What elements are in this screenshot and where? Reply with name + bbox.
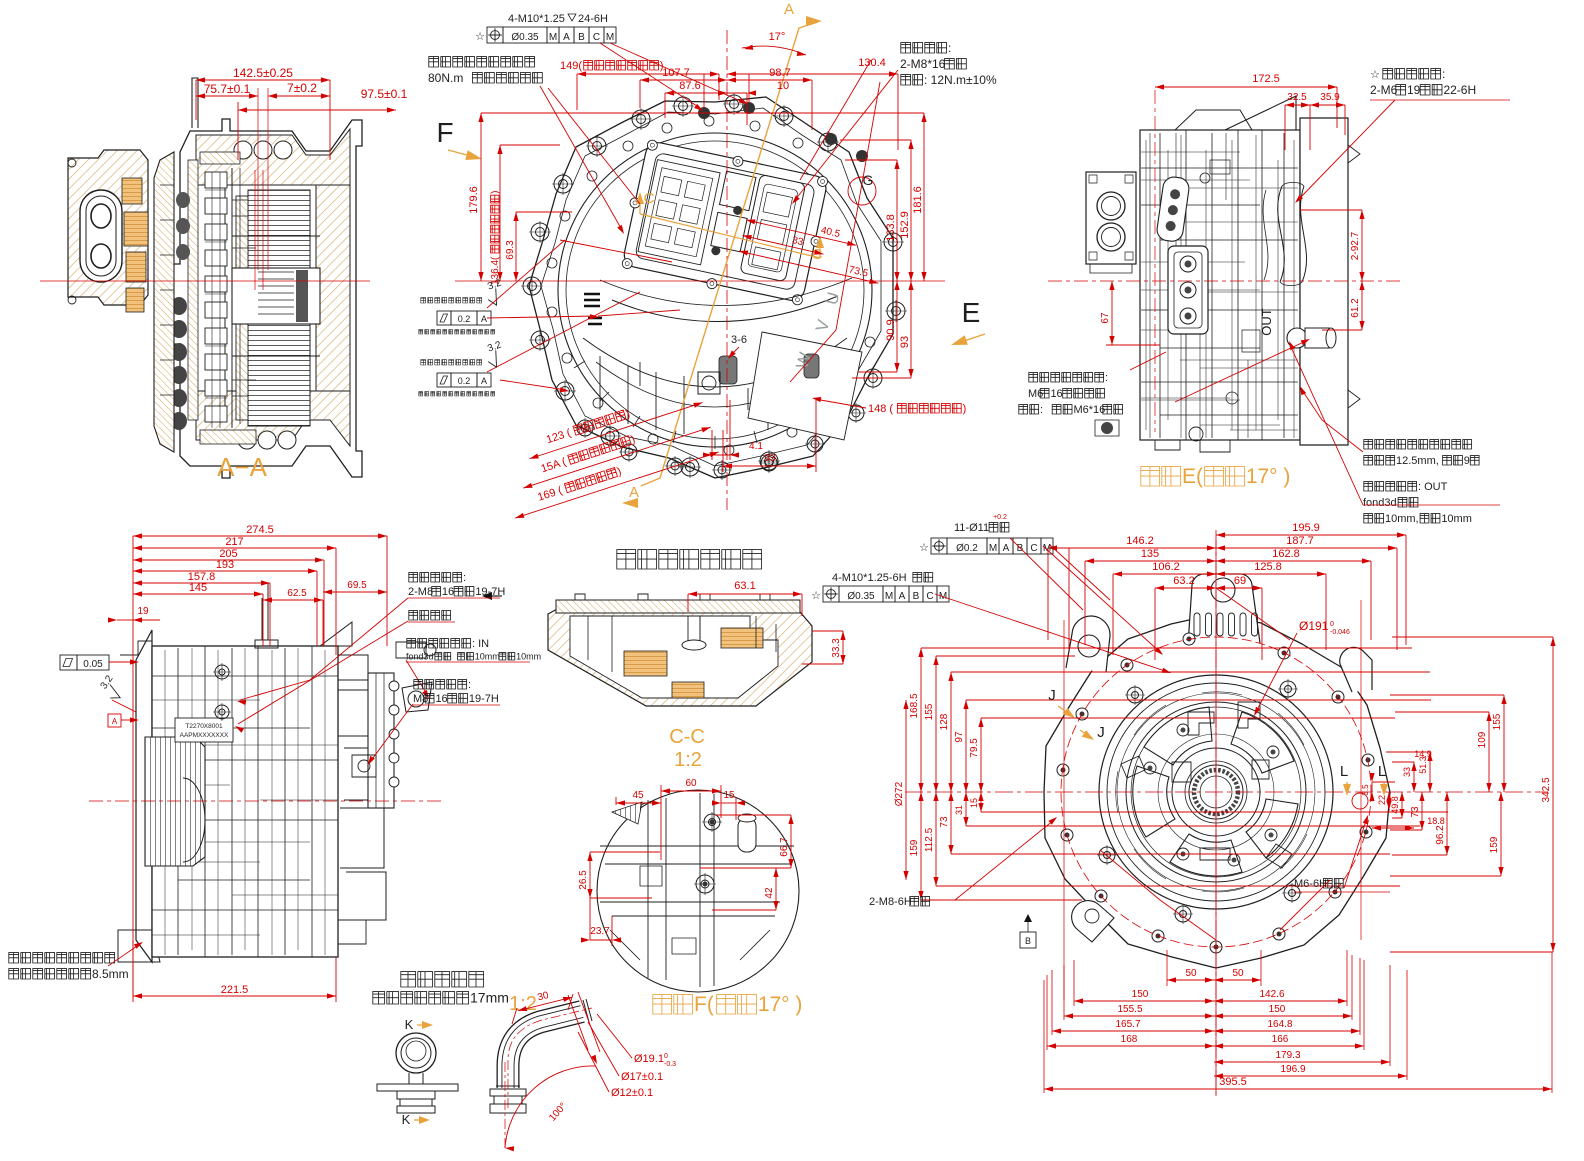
svg-text:2-M8*16: 2-M8*16: [900, 57, 946, 71]
svg-text:42: 42: [764, 887, 775, 899]
svg-text:97: 97: [954, 731, 965, 743]
svg-text:24-6H: 24-6H: [578, 13, 608, 25]
svg-text:M6*16: M6*16: [1073, 404, 1105, 416]
svg-text:96.2: 96.2: [1435, 825, 1446, 845]
svg-text:146.2: 146.2: [1126, 535, 1154, 547]
svg-text:Ø191: Ø191: [1299, 619, 1329, 633]
svg-text:87.6: 87.6: [679, 80, 700, 92]
svg-text:16: 16: [435, 693, 447, 705]
svg-text:): ): [490, 190, 501, 193]
svg-text:A−A: A−A: [217, 452, 268, 482]
svg-text:93: 93: [899, 336, 911, 348]
svg-text:19-7H: 19-7H: [469, 693, 499, 705]
svg-text:17° ): 17° ): [758, 993, 803, 1016]
svg-text:16: 16: [442, 586, 454, 598]
svg-text:0.05: 0.05: [83, 659, 103, 670]
svg-text:125.8: 125.8: [1254, 561, 1282, 573]
svg-text:8.5mm: 8.5mm: [92, 967, 129, 981]
svg-text:150: 150: [1269, 1004, 1286, 1015]
svg-text:195.9: 195.9: [1292, 522, 1320, 534]
svg-text:152.9: 152.9: [899, 211, 911, 239]
svg-text:C: C: [812, 246, 823, 263]
svg-text:10mm,: 10mm,: [1385, 513, 1419, 525]
svg-text:7±0.2: 7±0.2: [287, 81, 317, 95]
svg-text:164.8: 164.8: [1267, 1019, 1292, 1030]
svg-text:31: 31: [954, 805, 964, 815]
svg-text:C-C: C-C: [669, 726, 705, 748]
svg-text:10: 10: [777, 80, 789, 92]
svg-text:Ø0.35: Ø0.35: [847, 591, 875, 602]
svg-text:149(: 149(: [560, 60, 582, 72]
svg-text:17° ): 17° ): [1246, 465, 1291, 488]
svg-text:-0.3: -0.3: [664, 1061, 676, 1068]
svg-text:66.7: 66.7: [779, 837, 790, 857]
svg-text:166: 166: [1272, 1034, 1289, 1045]
svg-text:: OUT: : OUT: [1418, 481, 1448, 493]
svg-text:49.8: 49.8: [1390, 796, 1400, 814]
svg-text:196.9: 196.9: [1280, 1064, 1305, 1075]
svg-text::: :: [1105, 372, 1108, 384]
svg-text:☆: ☆: [811, 590, 821, 602]
svg-text:C: C: [644, 190, 655, 207]
svg-text:181.6: 181.6: [912, 186, 924, 214]
svg-text:80N.m: 80N.m: [428, 71, 463, 85]
svg-text:45: 45: [632, 790, 644, 801]
svg-text:: 12N.m±10%: : 12N.m±10%: [924, 73, 997, 87]
svg-text:50: 50: [1232, 968, 1244, 979]
svg-text:60: 60: [685, 778, 697, 789]
svg-text:35.9: 35.9: [1320, 92, 1340, 103]
svg-text:172.5: 172.5: [1252, 73, 1280, 85]
svg-text:73: 73: [1410, 806, 1421, 818]
svg-text:C: C: [926, 591, 933, 602]
svg-text:1:2: 1:2: [509, 993, 537, 1015]
svg-text:69.3: 69.3: [505, 240, 516, 260]
svg-text:B: B: [578, 32, 585, 43]
svg-text:69: 69: [1234, 575, 1246, 587]
svg-text:12.5mm,: 12.5mm,: [1396, 455, 1439, 467]
svg-text:67: 67: [1100, 312, 1111, 324]
svg-text:A: A: [112, 717, 118, 726]
svg-text:C: C: [593, 32, 600, 43]
svg-text:155.5: 155.5: [1117, 1004, 1142, 1015]
svg-text:T2270X8001: T2270X8001: [185, 723, 223, 730]
svg-text:179.3: 179.3: [1275, 1050, 1300, 1061]
svg-text:155: 155: [1492, 713, 1503, 730]
svg-text:+0.2: +0.2: [993, 514, 1007, 521]
svg-text:61.2: 61.2: [1350, 298, 1361, 318]
svg-text:162.8: 162.8: [1272, 548, 1300, 560]
svg-text:10mm: 10mm: [1441, 513, 1472, 525]
svg-text:Ø0.35: Ø0.35: [511, 32, 539, 43]
svg-text:128: 128: [939, 713, 950, 730]
svg-text:AAPMXXXXXXX: AAPMXXXXXXX: [180, 732, 229, 739]
svg-text:50: 50: [1185, 968, 1197, 979]
svg-text:☆: ☆: [919, 542, 929, 554]
svg-text:274.5: 274.5: [246, 524, 274, 536]
svg-text:193: 193: [216, 559, 234, 571]
svg-text:A: A: [481, 314, 487, 324]
svg-text:K: K: [402, 1112, 411, 1127]
svg-text:15: 15: [723, 790, 735, 801]
svg-text:17°: 17°: [769, 31, 786, 43]
svg-text:217: 217: [225, 536, 243, 548]
svg-text:M: M: [885, 591, 893, 602]
svg-text:A: A: [1003, 543, 1010, 554]
svg-text:33: 33: [1402, 767, 1412, 777]
svg-text:fond3d: fond3d: [406, 651, 434, 661]
svg-text:2-92.7: 2-92.7: [1350, 231, 1361, 260]
svg-text:32.5: 32.5: [1287, 92, 1307, 103]
svg-text:130.4: 130.4: [858, 57, 886, 69]
svg-text:☆: ☆: [475, 31, 485, 43]
svg-text:-0.046: -0.046: [1330, 629, 1350, 636]
svg-text:133.8: 133.8: [885, 214, 897, 242]
svg-text::: :: [468, 679, 471, 691]
svg-text:B: B: [1025, 936, 1031, 946]
svg-text:22: 22: [1377, 795, 1387, 805]
svg-text:☆: ☆: [1370, 69, 1380, 81]
svg-text:Ø0.2: Ø0.2: [956, 543, 978, 554]
svg-text:16: 16: [1050, 388, 1062, 400]
svg-text:19-7H: 19-7H: [475, 586, 505, 598]
svg-text:14.9: 14.9: [1414, 749, 1432, 759]
svg-text:10mm: 10mm: [475, 651, 500, 661]
svg-text:23.7: 23.7: [590, 926, 610, 937]
svg-text:M: M: [606, 32, 614, 43]
svg-text:K: K: [405, 1017, 414, 1032]
svg-text:0.2: 0.2: [458, 376, 471, 386]
svg-text:15: 15: [969, 798, 979, 808]
svg-text:221.5: 221.5: [221, 984, 249, 996]
svg-text:3-6: 3-6: [731, 334, 747, 346]
svg-text:Ø17±0.1: Ø17±0.1: [621, 1071, 663, 1083]
svg-text::: :: [1040, 404, 1043, 416]
svg-text:0: 0: [664, 1053, 668, 1060]
svg-text:17mm: 17mm: [470, 989, 509, 1005]
svg-text:4-M10*1.25-6H: 4-M10*1.25-6H: [832, 572, 907, 584]
svg-text:0.2: 0.2: [458, 314, 471, 324]
svg-text:142.6: 142.6: [1259, 989, 1284, 1000]
svg-text:4-M10*1.25: 4-M10*1.25: [508, 13, 565, 25]
svg-text:A: A: [563, 32, 570, 43]
svg-text::: :: [463, 572, 466, 584]
svg-text:E: E: [962, 297, 981, 328]
svg-text:395.5: 395.5: [1219, 1076, 1247, 1088]
svg-text:1:2: 1:2: [674, 749, 702, 771]
svg-text:Ø12±0.1: Ø12±0.1: [611, 1087, 653, 1099]
svg-text:J: J: [1097, 724, 1105, 741]
svg-text:2-M8: 2-M8: [408, 586, 433, 598]
svg-text:: IN: : IN: [472, 638, 489, 650]
svg-text:33.3: 33.3: [831, 638, 842, 658]
svg-text:): ): [963, 403, 967, 415]
svg-text:L: L: [1340, 763, 1348, 780]
svg-text:62.5: 62.5: [287, 588, 307, 599]
svg-text:168.5: 168.5: [909, 693, 920, 718]
svg-text:9: 9: [1464, 455, 1470, 467]
svg-text:G: G: [863, 172, 874, 188]
svg-text:A: A: [629, 484, 639, 501]
svg-text:179.6: 179.6: [468, 186, 480, 214]
svg-text:90.9: 90.9: [885, 319, 897, 340]
svg-text:98.7: 98.7: [769, 67, 790, 79]
svg-text:2-M8-6H: 2-M8-6H: [869, 896, 912, 908]
svg-text::: :: [1442, 67, 1445, 81]
svg-text:Ø19.1: Ø19.1: [634, 1053, 664, 1065]
svg-text:A: A: [784, 1, 794, 18]
svg-text:Ø272: Ø272: [894, 781, 905, 806]
svg-text:109: 109: [1477, 731, 1488, 748]
svg-text:M: M: [989, 543, 997, 554]
svg-text:18.8: 18.8: [1427, 816, 1445, 826]
svg-text:150: 150: [1132, 989, 1149, 1000]
svg-text:187.7: 187.7: [1286, 535, 1314, 547]
svg-text:A: A: [899, 591, 906, 602]
svg-text:10mm: 10mm: [516, 651, 541, 661]
svg-text:69.5: 69.5: [347, 580, 367, 591]
svg-text:F: F: [436, 117, 453, 148]
svg-text:107.7: 107.7: [662, 67, 690, 79]
svg-text:19: 19: [137, 606, 149, 617]
svg-text:97.5±0.1: 97.5±0.1: [361, 87, 408, 101]
svg-text:26.5: 26.5: [578, 870, 589, 890]
svg-text:112.5: 112.5: [924, 827, 935, 852]
svg-text:OUT: OUT: [1259, 308, 1274, 336]
svg-text:L: L: [1378, 763, 1386, 780]
svg-text:168: 168: [1121, 1034, 1138, 1045]
svg-text:2-M6: 2-M6: [1370, 83, 1398, 97]
svg-text:C: C: [1030, 543, 1037, 554]
svg-text:106.2: 106.2: [1152, 561, 1180, 573]
svg-text:F(: F(: [694, 993, 714, 1016]
svg-text:63.1: 63.1: [734, 580, 755, 592]
svg-text:19: 19: [1407, 83, 1421, 97]
svg-text:B: B: [913, 591, 920, 602]
svg-text:J: J: [1048, 687, 1056, 704]
svg-text:11-Ø11: 11-Ø11: [954, 522, 989, 534]
svg-text:73: 73: [939, 816, 950, 828]
svg-text:142.5±0.25: 142.5±0.25: [233, 66, 293, 80]
svg-text:342.5: 342.5: [1541, 777, 1552, 802]
svg-text:93: 93: [764, 453, 776, 464]
svg-text:159: 159: [1489, 836, 1500, 853]
svg-text:155: 155: [924, 703, 935, 720]
svg-text:M: M: [549, 32, 557, 43]
svg-text:75.7±0.1: 75.7±0.1: [204, 82, 251, 96]
svg-text:E(: E(: [1182, 465, 1203, 488]
svg-text:145: 145: [189, 582, 207, 594]
svg-text:22-6H: 22-6H: [1443, 83, 1476, 97]
svg-text:4.1: 4.1: [749, 441, 763, 452]
svg-text:135: 135: [1141, 548, 1159, 560]
svg-text:fond3d: fond3d: [1363, 497, 1397, 509]
svg-text:63.2: 63.2: [1173, 575, 1194, 587]
svg-text:165.7: 165.7: [1115, 1019, 1140, 1030]
svg-text:79.5: 79.5: [969, 738, 980, 758]
svg-text:148 (: 148 (: [868, 403, 893, 415]
svg-text:A: A: [481, 376, 487, 386]
svg-text::: :: [948, 41, 951, 55]
svg-text:159: 159: [909, 839, 920, 856]
svg-text:0: 0: [1330, 621, 1334, 628]
